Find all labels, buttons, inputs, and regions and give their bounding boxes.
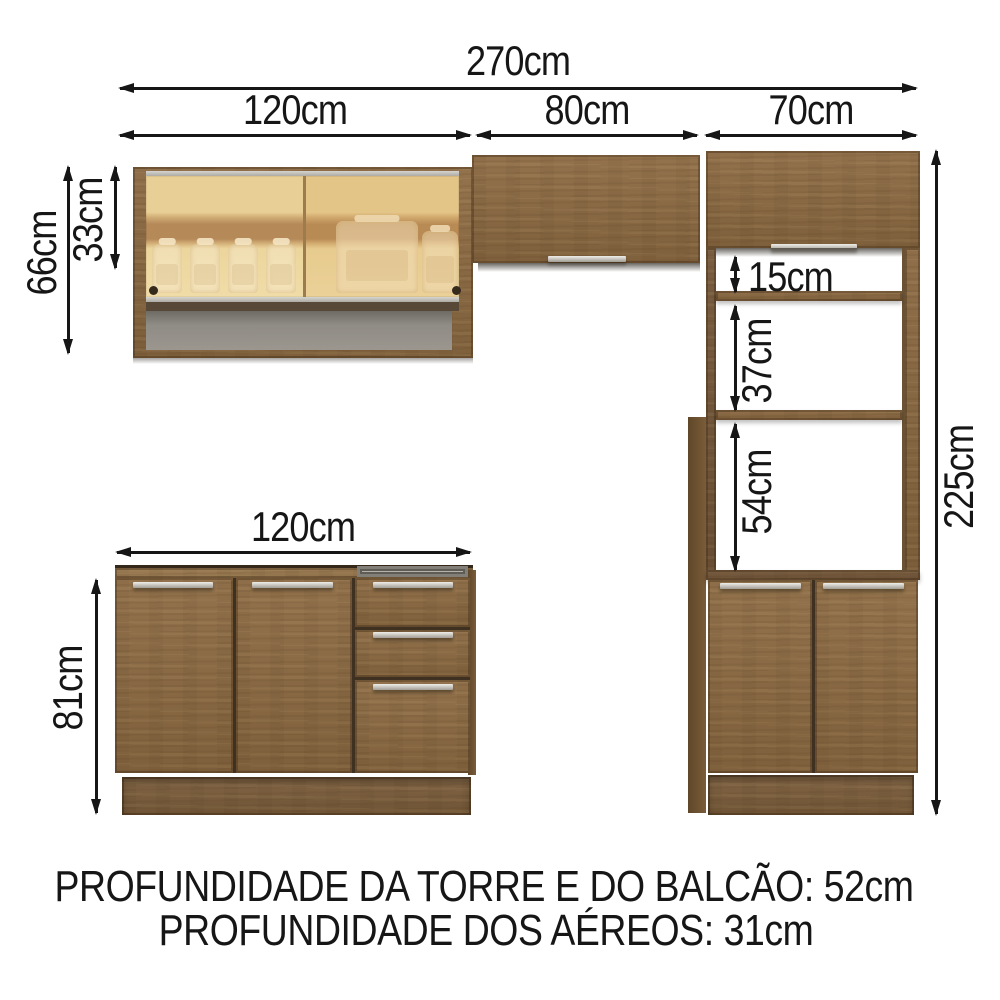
kitchen-cabinet-dimension-diagram: 270cm 120cm 80cm 70cm 66cm 33cm 15cm 37c… bbox=[0, 0, 1000, 1000]
depth-note-aereos: PROFUNDIDADE DOS AÉREOS: 31cm bbox=[159, 909, 814, 953]
dim-label-aereo-height: 66cm bbox=[21, 211, 63, 296]
cabinet-shadow bbox=[133, 358, 473, 364]
dim-label-niche-2: 37cm bbox=[736, 319, 778, 404]
tower-shelf-2 bbox=[716, 410, 902, 420]
dim-arrow-upper-2 bbox=[477, 134, 697, 137]
tower-top-cabinet bbox=[706, 151, 920, 248]
dim-label-glass-door-height: 33cm bbox=[67, 178, 109, 263]
open-shelf-front-edge bbox=[146, 302, 459, 311]
dim-label-niche-1: 15cm bbox=[748, 256, 833, 298]
tower-door-right bbox=[815, 580, 918, 773]
depth-note-tower-base: PROFUNDIDADE DA TORRE E DO BALCÃO: 52cm bbox=[54, 865, 913, 909]
sliding-glass-door-right bbox=[303, 176, 459, 297]
middle-cabinet-handle bbox=[548, 256, 626, 262]
base-door-1 bbox=[115, 578, 233, 773]
base-drawer-1-handle bbox=[373, 582, 453, 588]
middle-cabinet-door bbox=[472, 155, 700, 263]
tower-left-wall bbox=[706, 248, 716, 580]
glass-door-divider bbox=[303, 176, 306, 297]
tower-door-left-handle bbox=[720, 583, 801, 589]
dim-label-total-width: 270cm bbox=[466, 40, 570, 82]
dim-label-upper-2: 80cm bbox=[545, 89, 630, 131]
tower-plinth bbox=[708, 775, 914, 815]
dim-label-upper-1: 120cm bbox=[243, 89, 347, 131]
dim-label-tower-height: 225cm bbox=[938, 425, 980, 529]
tower-door-right-handle bbox=[823, 583, 904, 589]
middle-cabinet-shadow bbox=[478, 263, 700, 272]
dim-arrow-base-height bbox=[95, 580, 98, 813]
base-door-2 bbox=[236, 578, 352, 773]
open-shelf-niche bbox=[146, 311, 452, 350]
base-door-1-handle bbox=[133, 582, 213, 588]
dim-arrow-upper-3 bbox=[706, 134, 916, 137]
dim-label-upper-3: 70cm bbox=[769, 89, 854, 131]
door-knob-left bbox=[149, 286, 158, 295]
base-cabinet-top-rim bbox=[357, 566, 468, 577]
base-door-2-handle bbox=[252, 582, 333, 588]
door-knob-right bbox=[452, 286, 461, 295]
dim-arrow-niche-1 bbox=[734, 257, 737, 292]
dim-arrow-upper-1 bbox=[120, 134, 470, 137]
dim-label-base-width: 120cm bbox=[251, 506, 355, 548]
base-drawer-2-handle bbox=[373, 632, 453, 638]
tower-right-wall bbox=[902, 248, 920, 580]
base-door-3 bbox=[355, 680, 470, 773]
dim-arrow-glass-door-height bbox=[114, 167, 117, 268]
sliding-glass-door-left bbox=[146, 176, 305, 297]
tower-door-left bbox=[708, 580, 812, 773]
dim-label-base-height: 81cm bbox=[47, 646, 89, 731]
dim-label-oven-niche: 54cm bbox=[736, 450, 778, 535]
dim-arrow-base-width bbox=[117, 551, 470, 554]
base-plinth bbox=[122, 777, 471, 815]
base-door-3-handle bbox=[373, 684, 453, 690]
tower-deep-side-panel bbox=[688, 417, 706, 813]
